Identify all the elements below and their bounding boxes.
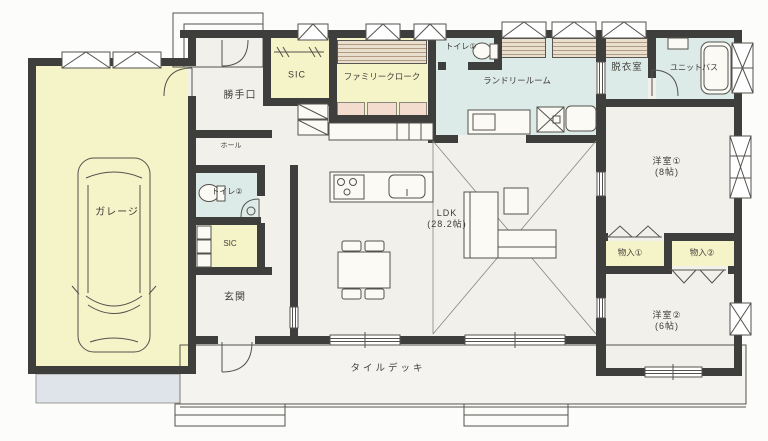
label-back-door: 勝手口	[224, 90, 257, 103]
label-storage-2: 物入②	[690, 248, 715, 259]
label-dressing: 脱衣室	[611, 62, 643, 74]
label-storage-1: 物入①	[618, 248, 643, 259]
label-toilet-1: トイレ①	[445, 42, 476, 52]
laundry-fixtures	[468, 106, 596, 134]
label-toilet-2: トイレ②	[211, 187, 242, 197]
label-tile-deck: タイルデッキ	[350, 363, 425, 375]
label-entrance: 玄関	[224, 292, 246, 305]
label-ldk: LDK (28.2帖)	[427, 208, 467, 231]
label-unit-bath: ユニットバス	[670, 63, 718, 73]
label-western-room-1: 洋室① (8帖)	[652, 156, 681, 179]
sofa-set	[464, 188, 556, 258]
car	[72, 158, 156, 352]
label-hall: ホール	[221, 143, 242, 152]
hanger-pipe	[274, 47, 324, 57]
kitchen	[329, 123, 433, 202]
label-sic-entrance: SIC	[223, 239, 236, 249]
dining-set	[338, 241, 390, 299]
label-laundry: ランドリールーム	[483, 76, 551, 87]
label-family-closet: ファミリークローク	[344, 72, 421, 83]
top-windows	[62, 22, 646, 68]
label-western-room-2: 洋室② (6帖)	[652, 310, 681, 333]
label-garage: ガレージ	[95, 207, 139, 220]
label-sic-upper: SIC	[288, 69, 306, 80]
floor-plan: ガレージ 勝手口 ホール トイレ② SIC 玄関 SIC ファミリークローク ト…	[0, 0, 768, 441]
